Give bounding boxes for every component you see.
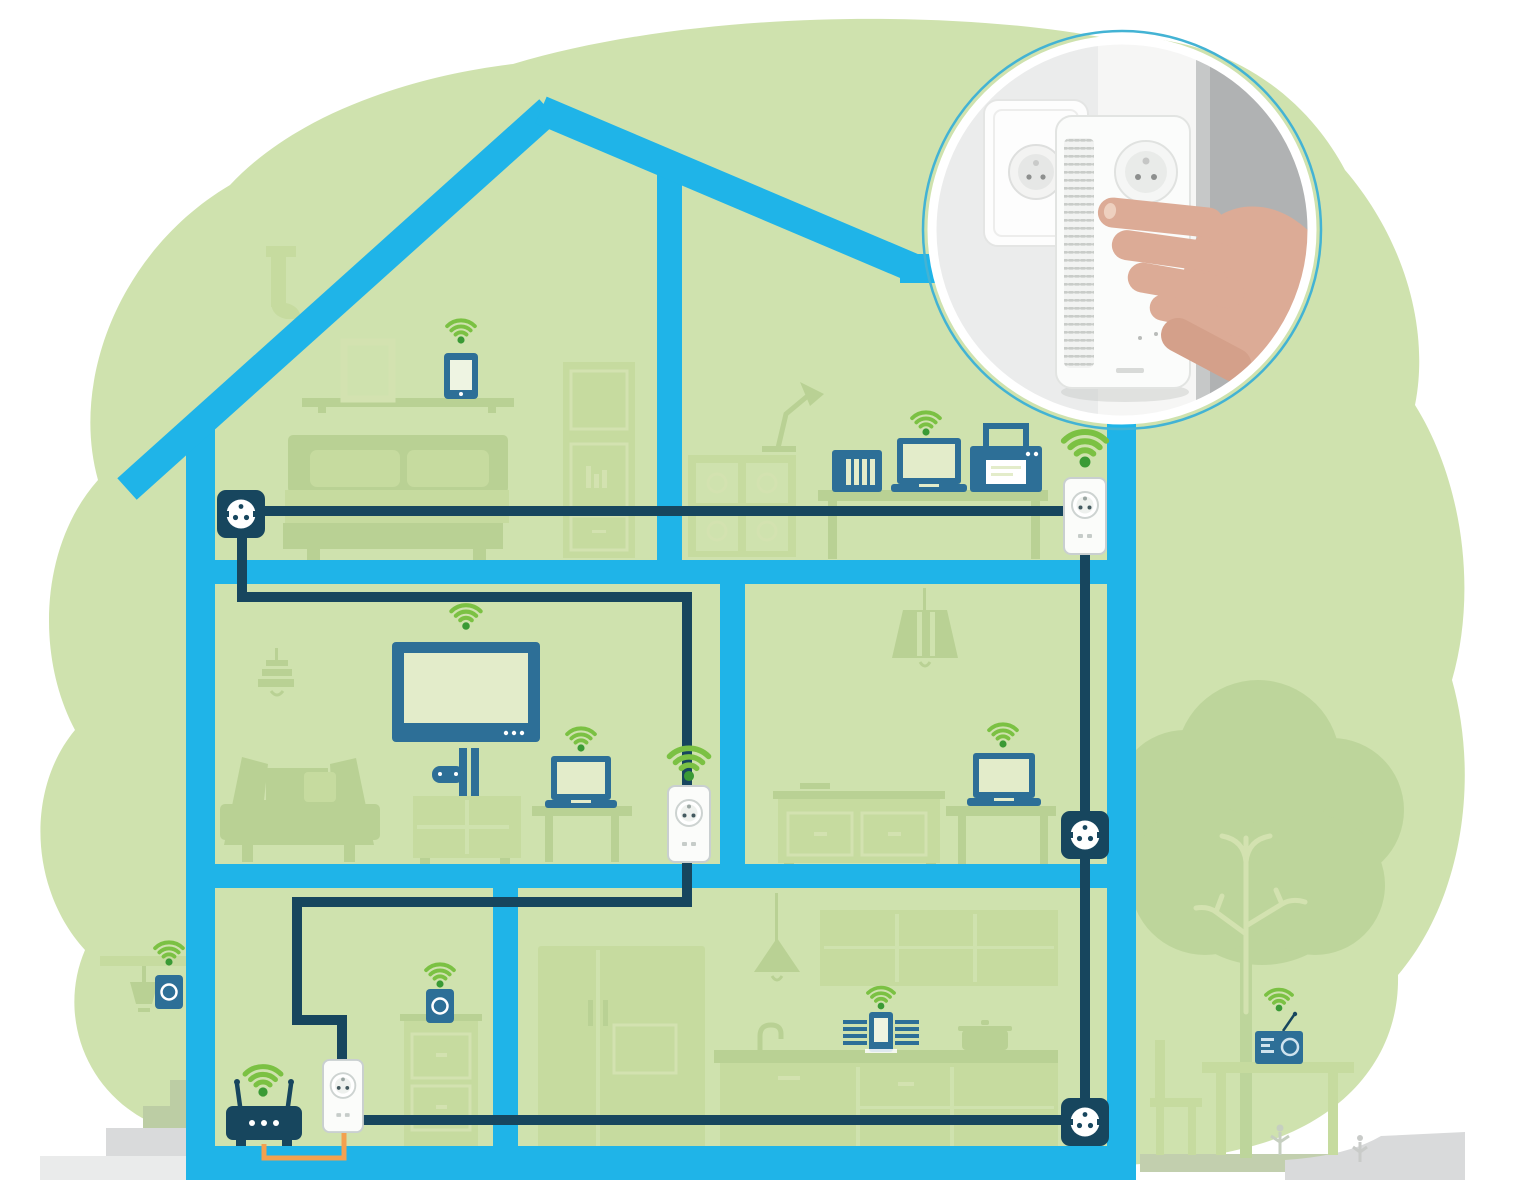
middle-divider-wall [720,584,745,868]
router-room-furniture [400,1014,482,1152]
wall-shelf [302,398,514,407]
wardrobe [563,362,635,558]
attic-divider-wall [657,170,682,584]
middle-floor [186,864,1136,888]
left-wall [186,420,215,1180]
illustration-stage [0,0,1536,1180]
adapter-logo [1116,368,1144,373]
nas-server [832,450,882,492]
kitchen-counter [714,1050,1058,1152]
wall-outlet-kitchen [1061,1098,1109,1146]
powerline-adapter-ground [323,1060,363,1132]
vent-grille [1064,138,1094,368]
drawer-cabinet [400,1014,482,1152]
tv-cabinet [413,796,521,864]
wall-outlet-attic [217,490,265,538]
home-network-illustration [0,0,1536,1180]
outdoor-speaker [155,942,183,1009]
house-base [186,1146,1136,1180]
attic-floor [186,560,1136,584]
bed [283,435,509,562]
wall-cabinets [820,910,1058,986]
sideboard [773,783,945,868]
ground-divider-wall [493,888,518,1146]
wall-outlet-bedroom [1061,811,1109,859]
